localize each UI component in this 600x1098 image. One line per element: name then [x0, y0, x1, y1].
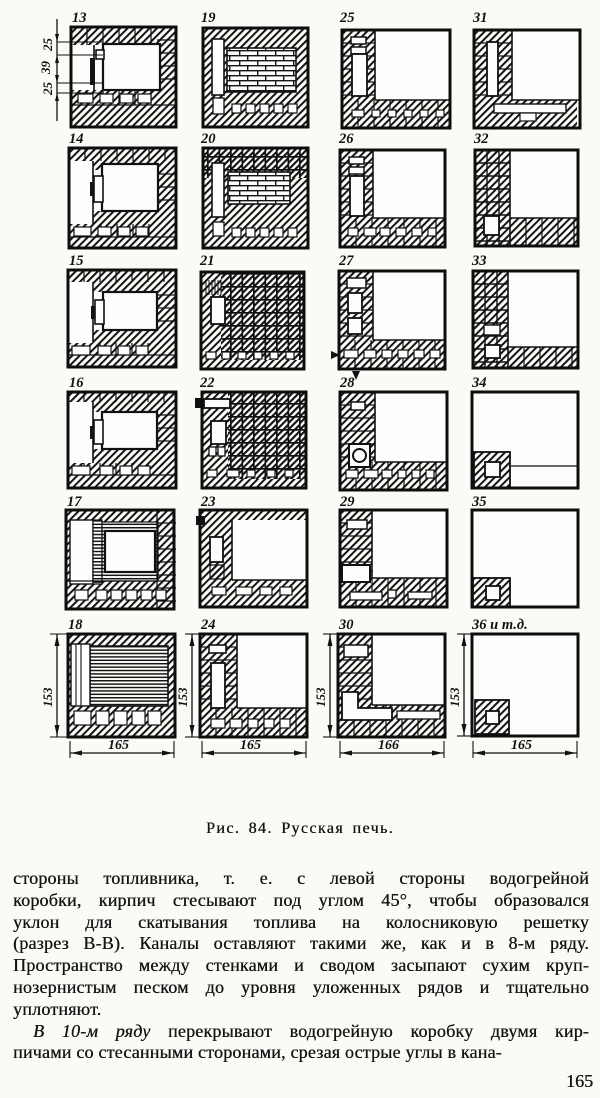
svg-text:30: 30: [338, 617, 354, 633]
svg-text:165: 165: [108, 738, 129, 753]
svg-text:34: 34: [471, 375, 487, 391]
svg-text:166: 166: [378, 738, 399, 753]
svg-text:36 и т.д.: 36 и т.д.: [471, 617, 528, 633]
svg-text:25: 25: [339, 10, 355, 26]
svg-text:18: 18: [68, 617, 83, 633]
svg-text:28: 28: [339, 375, 355, 391]
svg-text:19: 19: [201, 10, 216, 26]
svg-text:20: 20: [200, 131, 216, 147]
svg-text:33: 33: [471, 253, 487, 269]
svg-text:26: 26: [338, 131, 354, 147]
svg-text:153: 153: [175, 687, 190, 707]
svg-text:165: 165: [511, 738, 532, 753]
svg-text:153: 153: [447, 687, 462, 707]
svg-text:165: 165: [240, 738, 261, 753]
svg-text:39: 39: [38, 61, 53, 76]
svg-text:29: 29: [339, 494, 355, 510]
svg-text:14: 14: [69, 131, 84, 147]
svg-text:35: 35: [471, 494, 487, 510]
svg-text:22: 22: [199, 375, 215, 391]
svg-text:21: 21: [199, 253, 215, 269]
svg-text:153: 153: [40, 687, 55, 707]
svg-text:25: 25: [40, 38, 55, 53]
svg-text:153: 153: [313, 687, 328, 707]
svg-text:24: 24: [200, 617, 216, 633]
svg-text:23: 23: [200, 494, 216, 510]
svg-text:31: 31: [472, 10, 488, 26]
svg-text:32: 32: [473, 131, 489, 147]
svg-text:15: 15: [69, 253, 84, 269]
svg-text:13: 13: [72, 10, 87, 26]
svg-text:17: 17: [67, 494, 82, 510]
svg-text:27: 27: [338, 253, 354, 269]
svg-text:16: 16: [69, 375, 84, 391]
svg-text:25: 25: [40, 82, 55, 97]
